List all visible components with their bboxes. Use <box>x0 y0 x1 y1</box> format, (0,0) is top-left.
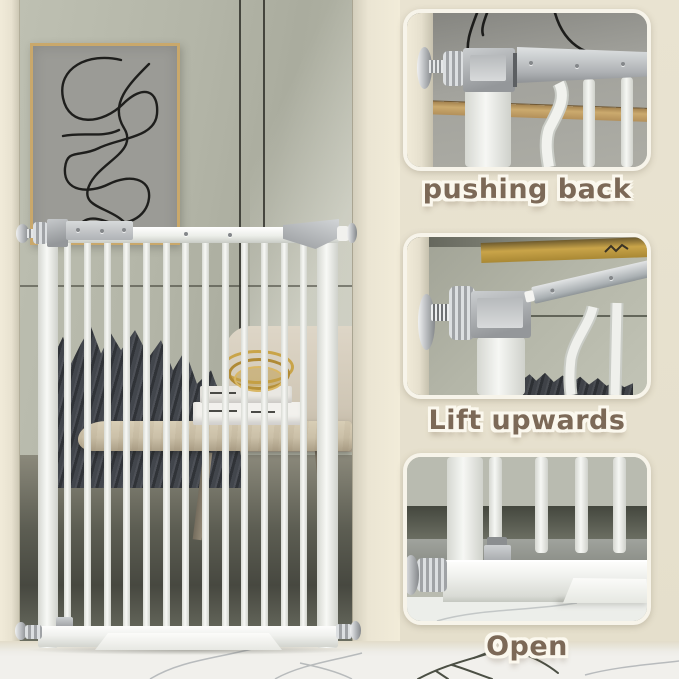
screw <box>100 229 104 233</box>
gate-bar <box>583 79 595 167</box>
lock-housing <box>463 48 515 92</box>
gate-bar <box>163 238 170 632</box>
gate-bar <box>281 238 288 632</box>
screw <box>575 64 579 68</box>
gate-left-post <box>38 225 58 648</box>
screw <box>550 288 555 293</box>
threshold-ramp <box>563 578 649 603</box>
gate-bar <box>104 238 111 632</box>
gate-bar <box>300 238 307 632</box>
gate-bar <box>222 238 229 632</box>
step-panel-open <box>403 453 651 625</box>
safety-gate <box>0 0 405 679</box>
pressure-mount-disc <box>418 294 435 350</box>
lock-housing-face <box>470 55 506 81</box>
adjuster-knob <box>25 625 42 639</box>
step-label-open: Open <box>403 629 651 665</box>
gate-bar <box>261 238 268 632</box>
screw <box>529 61 533 65</box>
gate-bar <box>64 238 71 632</box>
gate-right-post <box>317 240 338 648</box>
screw <box>122 228 126 232</box>
screw <box>184 232 188 236</box>
gate-bar <box>241 238 248 632</box>
panel-dark-band <box>407 506 647 539</box>
gate-bar <box>575 457 588 553</box>
gate-bar <box>123 238 130 632</box>
threshold-ramp <box>95 633 282 650</box>
gate-bar <box>202 238 209 632</box>
gate-bar <box>535 457 548 553</box>
screw <box>609 276 614 281</box>
screw <box>76 228 80 232</box>
gate-bar <box>143 238 150 632</box>
screw <box>621 62 625 66</box>
step-label-lift-upwards: Lift upwards <box>403 403 651 439</box>
adjuster-knob <box>33 222 48 244</box>
adjuster-knob <box>443 51 465 86</box>
step-panel-pushing-back <box>403 9 651 171</box>
step-label-pushing-back: pushing back <box>403 172 651 208</box>
gate-bar <box>182 238 189 632</box>
step-panel-lift-upwards <box>403 233 651 399</box>
panel-gate-bars <box>407 13 647 167</box>
latch-slot <box>513 53 517 87</box>
gate-bar <box>613 457 626 553</box>
lock-housing <box>47 219 68 247</box>
pressure-mount-disc <box>403 555 419 595</box>
lock-housing <box>471 291 531 338</box>
pressure-mount-disc <box>350 621 361 640</box>
latch-pin <box>524 290 535 303</box>
latch-plate <box>66 221 133 240</box>
screw <box>228 233 232 237</box>
adjuster-knob <box>417 558 447 592</box>
pressure-mount-disc <box>347 223 357 243</box>
gate-bar <box>84 238 91 632</box>
lock-housing-face <box>477 298 523 328</box>
product-instruction-image: pushing back <box>0 0 679 679</box>
gate-bar <box>621 77 633 167</box>
gate-post <box>447 457 483 565</box>
